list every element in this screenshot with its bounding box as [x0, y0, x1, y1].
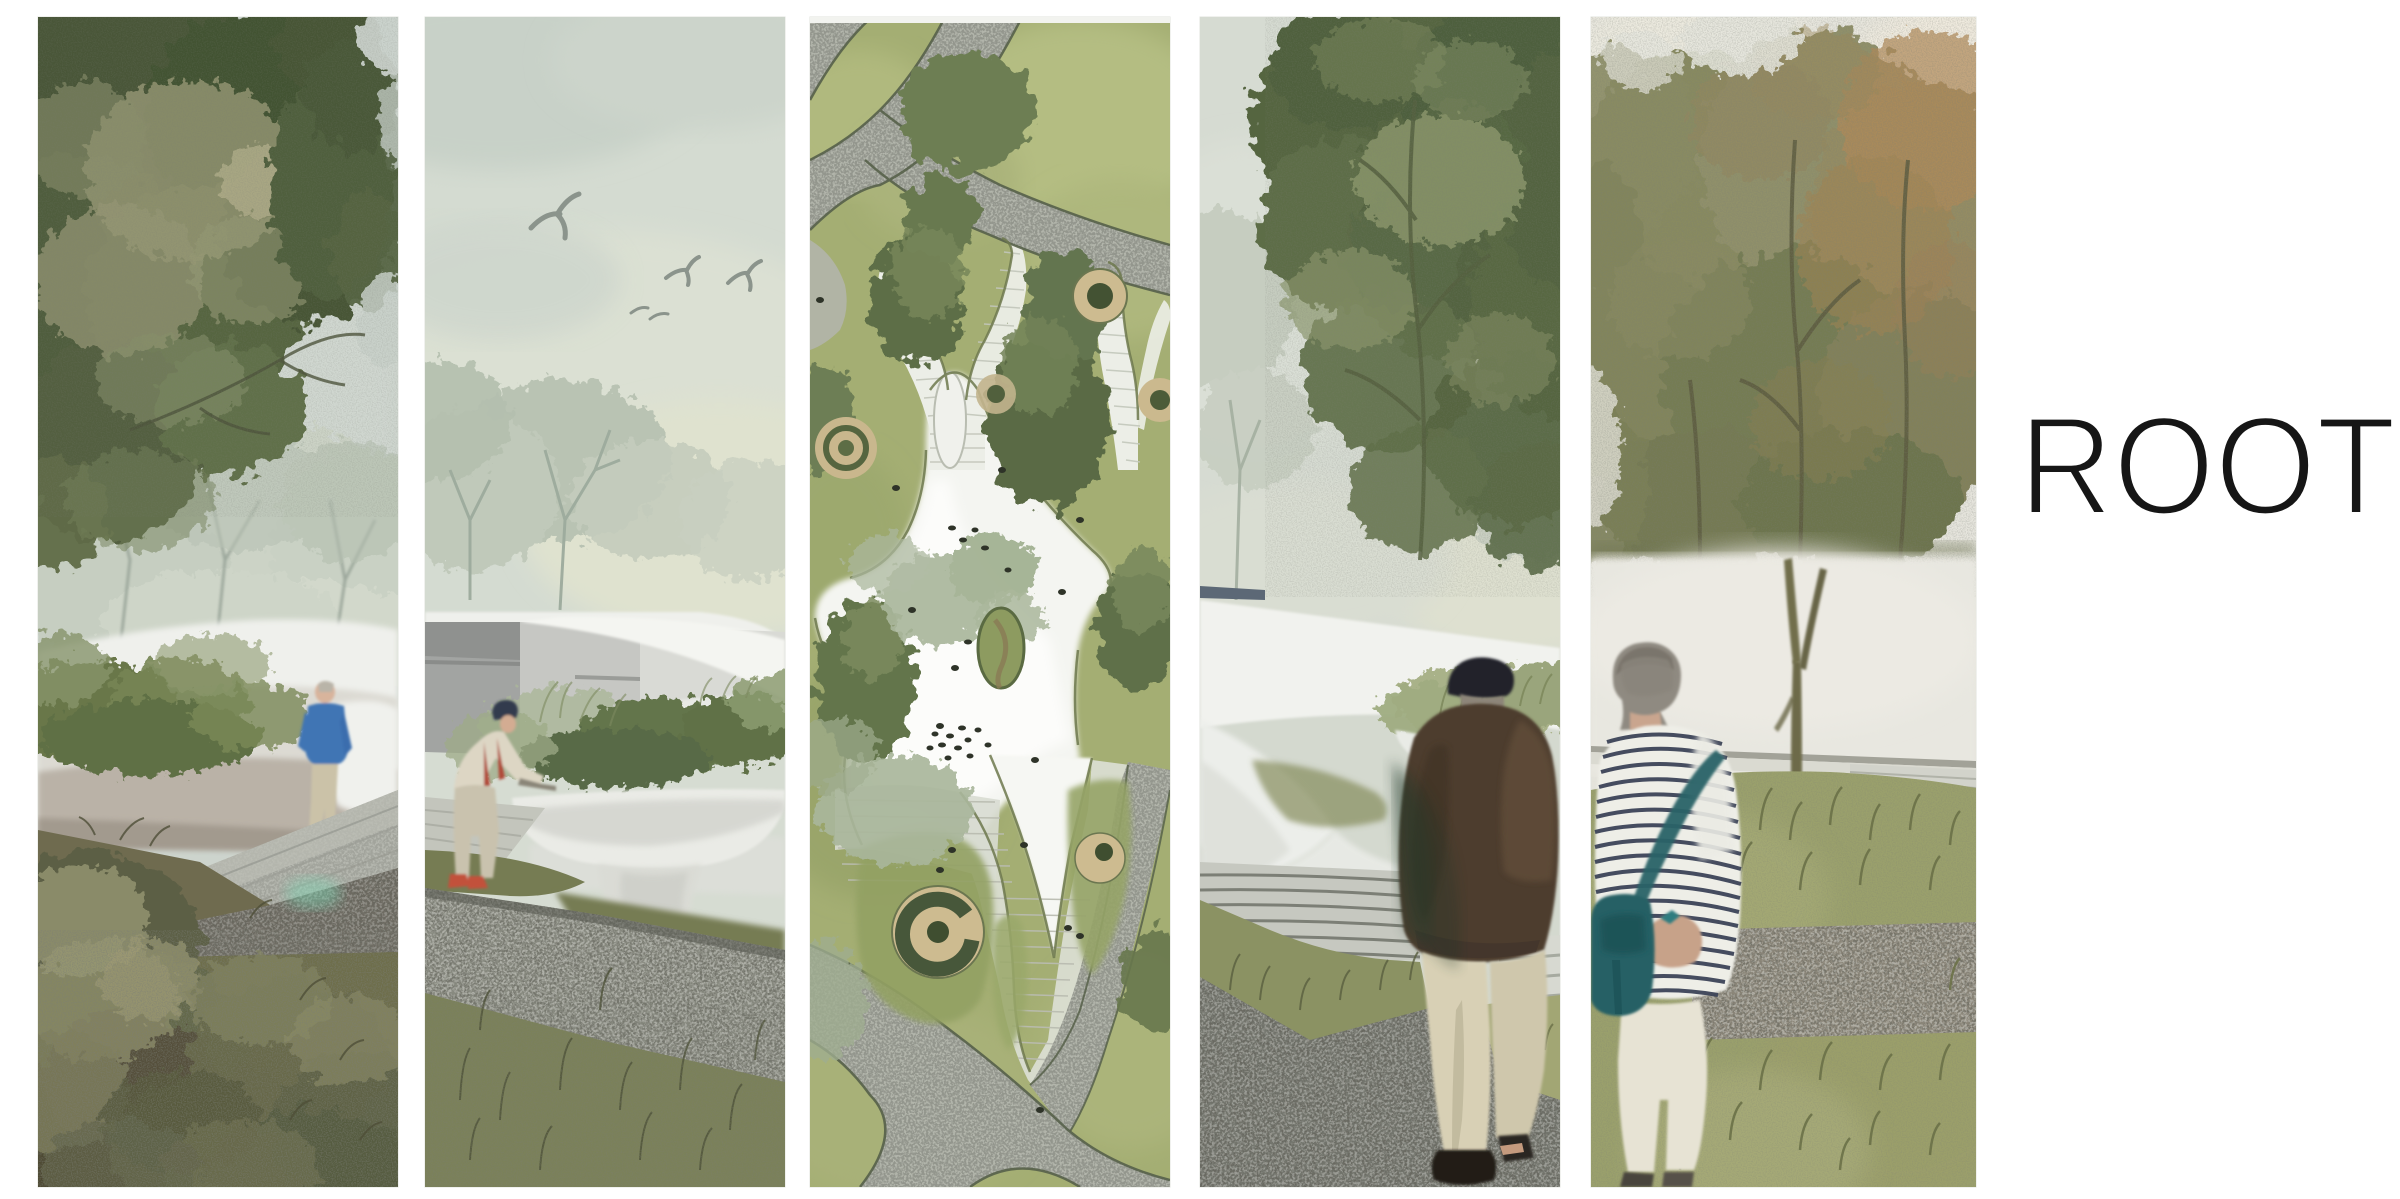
svg-text:ROOT: ROOT	[2019, 387, 2396, 544]
